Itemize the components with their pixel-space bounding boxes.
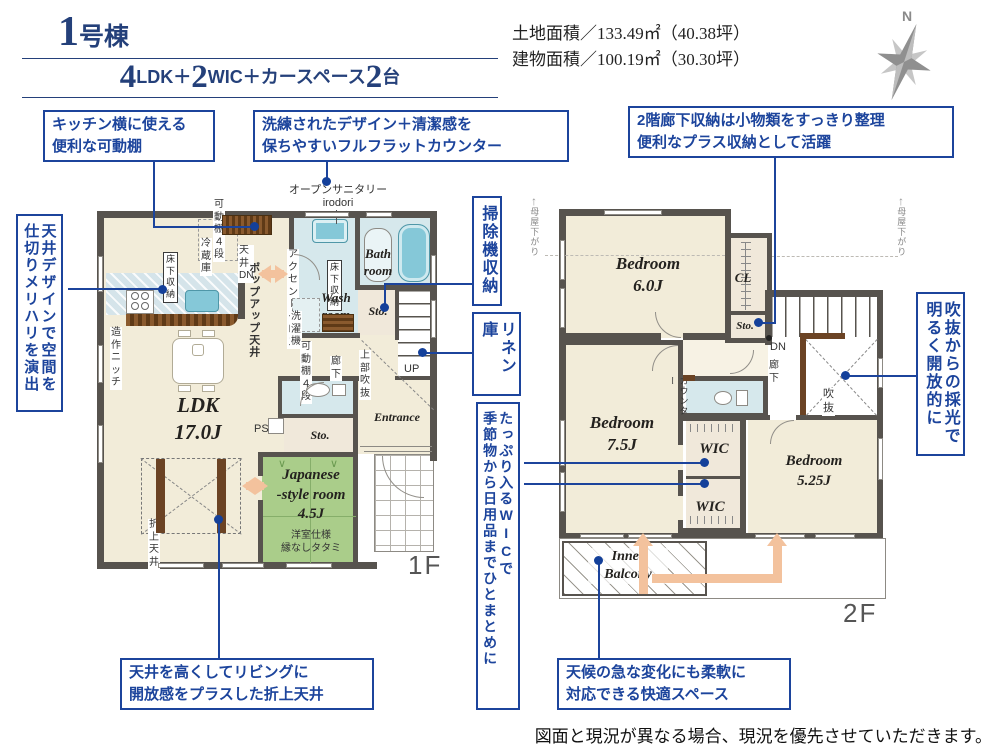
building-number: 1 <box>58 9 79 55</box>
ps-label: PS <box>254 423 269 437</box>
window-marker <box>815 534 855 538</box>
movable-shelf <box>222 215 272 235</box>
connector-line <box>524 483 702 485</box>
wall <box>278 376 360 381</box>
wall <box>258 452 263 476</box>
bedroom1-label: Bedroom 6.0J <box>598 253 698 297</box>
ps-duct <box>268 418 284 434</box>
connector-line <box>422 352 472 354</box>
storage2-label: Sto. <box>300 428 340 444</box>
window-marker <box>604 210 662 215</box>
open-sanitary-label: オープンサニタリー <box>282 184 394 198</box>
hallway-2f <box>683 338 768 380</box>
callout-ceiling-design: 天井デザインで空間を 仕切りメリハリを演出 <box>16 214 63 412</box>
flow-arrow-icon <box>652 574 782 583</box>
connector-dot <box>214 515 223 524</box>
kitchen-counter-front <box>126 314 238 326</box>
stairs-up <box>398 290 434 368</box>
connector-dot <box>841 371 850 380</box>
connector-dot <box>322 177 331 186</box>
callout-void-light: 吹抜からの採光で 明るく開放的に <box>916 292 965 456</box>
up-label: UP <box>404 363 419 377</box>
plan-text: WIC＋カースペース <box>208 67 366 87</box>
building-area: 建物面積／100.19㎡（30.30坪） <box>512 47 750 73</box>
connector-line <box>68 288 160 290</box>
connector-dot <box>700 458 709 467</box>
window-marker <box>560 420 565 466</box>
dn-label: DN <box>770 341 786 355</box>
window-marker <box>98 425 103 463</box>
chair-icon <box>202 385 215 392</box>
chair-icon <box>178 330 191 337</box>
svg-text:N: N <box>902 8 912 24</box>
wall <box>725 233 772 238</box>
floor1-label: 1F <box>408 550 442 581</box>
floorplan-flyer: 1号棟 4LDK＋2WIC＋カースペース2台 土地面積／133.49㎡（40.3… <box>0 0 1000 751</box>
window-marker <box>580 534 624 538</box>
wall <box>765 290 883 297</box>
window-marker <box>222 563 264 568</box>
floor2-label: 2F <box>843 598 877 629</box>
window-marker <box>431 300 436 338</box>
fridge-label: 冷蔵庫 <box>200 238 212 276</box>
toilet-tank <box>332 384 346 396</box>
bathtub-icon <box>398 224 430 282</box>
flow-arrow-icon <box>262 270 284 278</box>
stair-rail <box>800 333 845 339</box>
wall <box>282 414 358 418</box>
stove-icon <box>126 290 154 314</box>
eaves-dash <box>772 256 898 257</box>
connector-dot <box>380 303 389 312</box>
callout-vacuum-storage: 掃除機収納 <box>472 196 502 306</box>
entrance-label: Entrance <box>366 410 428 426</box>
flow-arrow-icon <box>246 482 264 490</box>
window-marker <box>560 288 565 328</box>
wall <box>877 290 883 538</box>
wall <box>686 476 740 479</box>
void-label: 吹抜 <box>822 388 835 416</box>
wic-hangers <box>690 424 736 432</box>
bedroom3-label: Bedroom 5.25J <box>764 452 864 491</box>
connector-line <box>384 283 472 285</box>
window-marker <box>158 563 204 568</box>
callout-hall-storage: 2階廊下収納は小物類をすっきり整理 便利なプラス収納として活躍 <box>628 106 954 158</box>
window-marker <box>305 212 349 217</box>
wall <box>353 380 358 454</box>
callout-wic: たっぷり入るWICで 季節物から日用品までひとまとめに <box>476 402 520 710</box>
toilet-tank <box>736 390 748 406</box>
bedroom2-label: Bedroom 7.5J <box>572 412 672 456</box>
callout-kitchen-shelf: キッチン横に使える 便利な可動棚 <box>43 110 215 162</box>
wall <box>681 417 740 421</box>
wall <box>683 533 746 538</box>
stair-rail <box>800 333 806 415</box>
wall <box>725 311 768 315</box>
connector-line <box>153 160 155 226</box>
window-marker <box>431 255 436 285</box>
wall <box>746 415 770 420</box>
bathroom-label: Bath room <box>356 246 400 280</box>
plan-num: 2 <box>191 59 208 95</box>
area-info: 土地面積／133.49㎡（40.38坪） 建物面積／100.19㎡（30.30坪… <box>512 21 750 74</box>
chair-icon <box>202 330 215 337</box>
dn-dot <box>766 335 772 341</box>
callout-balcony: 天候の急な変化にも柔軟に 対応できる快適スペース <box>557 658 791 710</box>
ldk-label: LDK 17.0J <box>148 392 248 447</box>
storage1-label: Sto. <box>362 304 394 320</box>
page-title: 1号棟 <box>58 8 129 56</box>
window-marker <box>878 438 883 480</box>
plan-text: LDK＋ <box>136 67 191 87</box>
step-line <box>360 446 432 447</box>
kitchen-sink <box>185 290 219 312</box>
connector-line <box>849 375 916 377</box>
eaves-dash <box>545 255 725 256</box>
wic1-label: WIC <box>692 440 736 460</box>
plan-num: 4 <box>120 59 137 95</box>
japanese-room-note: 洋室仕様 縁なしタタミ <box>280 530 342 555</box>
plan-spec: 4LDK＋2WIC＋カースペース2台 <box>22 59 498 96</box>
window-marker <box>366 212 392 217</box>
ceiling-beam <box>156 459 165 533</box>
land-area: 土地面積／133.49㎡（40.38坪） <box>512 21 750 47</box>
callout-folded-ceiling: 天井を高くしてリビングに 開放感をプラスした折上天井 <box>120 658 374 710</box>
wall <box>559 340 683 345</box>
vanity-sink <box>312 219 348 243</box>
connector-line <box>524 462 702 464</box>
hall2-label: 廊下 <box>768 360 780 385</box>
connector-dot <box>418 348 427 357</box>
header-rule-bottom <box>22 97 498 98</box>
eaves-left-label: 母屋下がり <box>528 207 539 265</box>
compass-icon: N <box>862 6 946 102</box>
connector-line <box>774 158 776 324</box>
plan-text: 台 <box>382 67 400 87</box>
window-marker <box>878 358 883 388</box>
hall-label: 廊下 <box>330 356 342 381</box>
connector-dot <box>700 479 709 488</box>
underfloor-storage-label: 床下 収納 <box>163 252 178 303</box>
window-marker <box>98 345 103 383</box>
chair-icon <box>178 385 191 392</box>
niche-label: 造作ニッチ <box>110 327 122 390</box>
japanese-room-label: Japanese -style room 4.5J <box>266 466 356 525</box>
upper-void-label: 上部 吹抜 <box>359 350 371 400</box>
wall <box>258 500 263 566</box>
disclaimer: 図面と現況が異なる場合、現況を優先させていただきます。 <box>535 722 992 747</box>
wall <box>395 290 399 340</box>
wall <box>796 415 880 420</box>
closet-label: CL <box>725 270 761 287</box>
wic2-label: WIC <box>688 498 732 518</box>
flow-arrow-icon <box>639 546 648 594</box>
window-marker <box>560 240 565 280</box>
toilet-bowl-icon <box>714 391 732 405</box>
plan-num: 2 <box>366 59 383 95</box>
connector-dot <box>594 556 603 565</box>
connector-line <box>598 562 600 658</box>
window-marker <box>560 472 565 512</box>
wall <box>258 452 358 457</box>
window-marker <box>286 563 332 568</box>
connector-line <box>153 226 254 228</box>
connector-dot <box>250 222 259 231</box>
movable-shelf <box>322 314 354 332</box>
wall <box>740 417 746 533</box>
window-marker <box>98 256 103 292</box>
stairs-down <box>771 297 877 337</box>
connector-dot <box>158 285 167 294</box>
connector-dot <box>754 318 763 327</box>
irodori-label: irodori <box>282 197 394 211</box>
callout-linen-closet: リネン庫 <box>472 312 521 396</box>
table-pot-icon <box>192 344 204 356</box>
wall <box>683 333 731 340</box>
building-suffix: 号棟 <box>79 23 129 51</box>
callout-flat-counter: 洗練されたデザイン＋清潔感を 保ちやすいフルフラットカウンター <box>253 110 569 162</box>
connector-line <box>218 521 220 658</box>
counter-board <box>683 375 695 381</box>
step-line <box>364 451 432 452</box>
flow-arrow-icon <box>773 546 782 583</box>
wall <box>559 333 661 340</box>
